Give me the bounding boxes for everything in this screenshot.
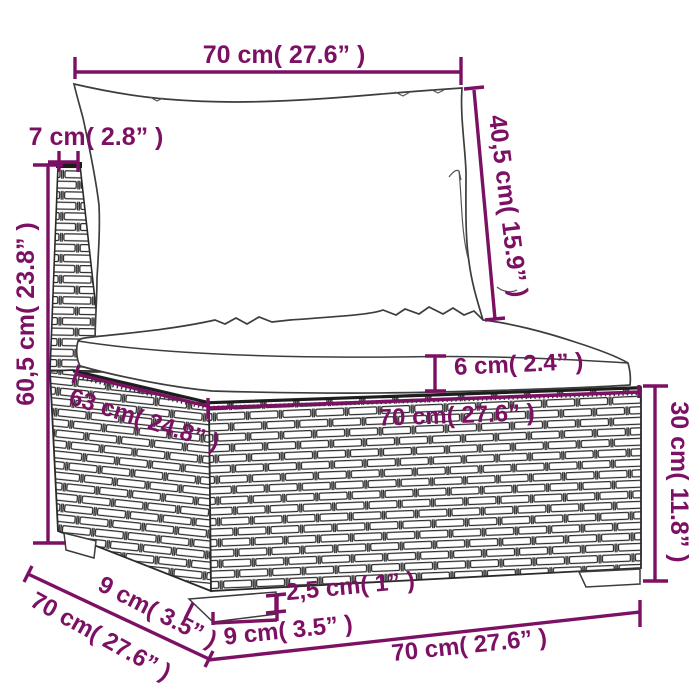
svg-text:30 cm( 11.8” ): 30 cm( 11.8” )	[665, 401, 693, 562]
svg-text:70 cm( 27.6” ): 70 cm( 27.6” )	[378, 399, 535, 431]
svg-text:60,5 cm( 23.8” ): 60,5 cm( 23.8” )	[12, 222, 40, 405]
svg-text:7 cm( 2.8” ): 7 cm( 2.8” )	[29, 123, 164, 151]
svg-text:70 cm( 27.6” ): 70 cm( 27.6” )	[203, 41, 366, 69]
svg-text:6 cm( 2.4” ): 6 cm( 2.4” )	[453, 348, 583, 381]
